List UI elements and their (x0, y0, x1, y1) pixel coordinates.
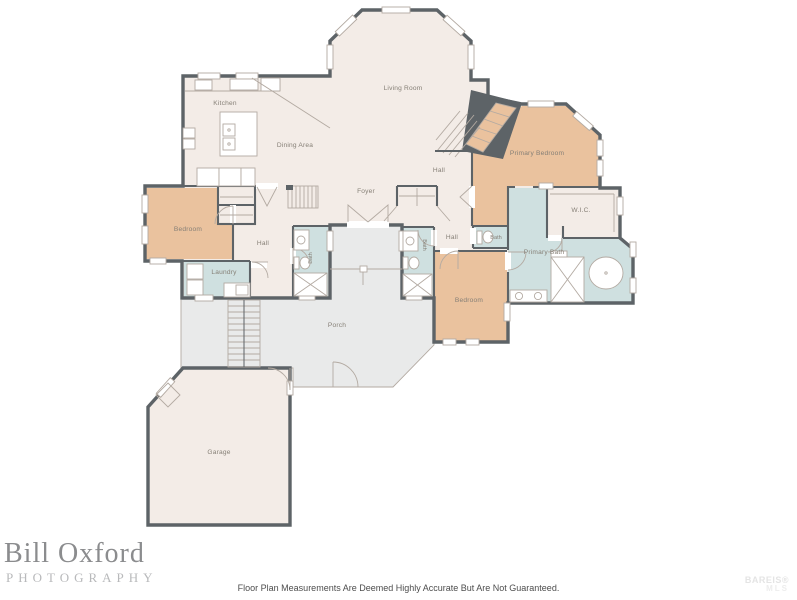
room-garage (148, 368, 290, 525)
label-dining-area: Dining Area (277, 142, 313, 149)
label-bath-hall: Bath (490, 235, 502, 241)
room-bedroom-right (435, 251, 507, 341)
label-bath-left: Bath (308, 252, 314, 264)
label-bedroom-right: Bedroom (455, 297, 483, 304)
label-living-room: Living Room (384, 85, 423, 92)
label-hall-left: Hall (257, 240, 269, 247)
label-foyer: Foyer (357, 188, 375, 195)
label-porch: Porch (328, 322, 346, 329)
photographer-name: Bill Oxford (4, 540, 158, 568)
mls-line2: MLS (745, 585, 789, 593)
mls-watermark: BAREIS® MLS (745, 576, 789, 593)
disclaimer-text: Floor Plan Measurements Are Deemed Highl… (0, 583, 797, 593)
floor-plan-drawing: Kitchen Living Room Dining Area Hall Foy… (0, 0, 797, 600)
label-primary-bedroom: Primary Bedroom (510, 150, 565, 157)
photographer-watermark: Bill Oxford PHOTOGRAPHY (4, 540, 158, 584)
label-bedroom-left: Bedroom (174, 226, 202, 233)
floor-plan-page: Kitchen Living Room Dining Area Hall Foy… (0, 0, 797, 600)
label-hall-upper: Hall (433, 167, 445, 174)
label-kitchen: Kitchen (213, 100, 237, 107)
label-wic: W.I.C. (571, 207, 590, 214)
label-bath-right: Bath (421, 239, 427, 251)
label-laundry: Laundry (211, 269, 237, 276)
label-garage: Garage (207, 449, 230, 456)
label-primary-bath: Primary Bath (524, 249, 565, 256)
label-hall-right: Hall (446, 234, 458, 241)
